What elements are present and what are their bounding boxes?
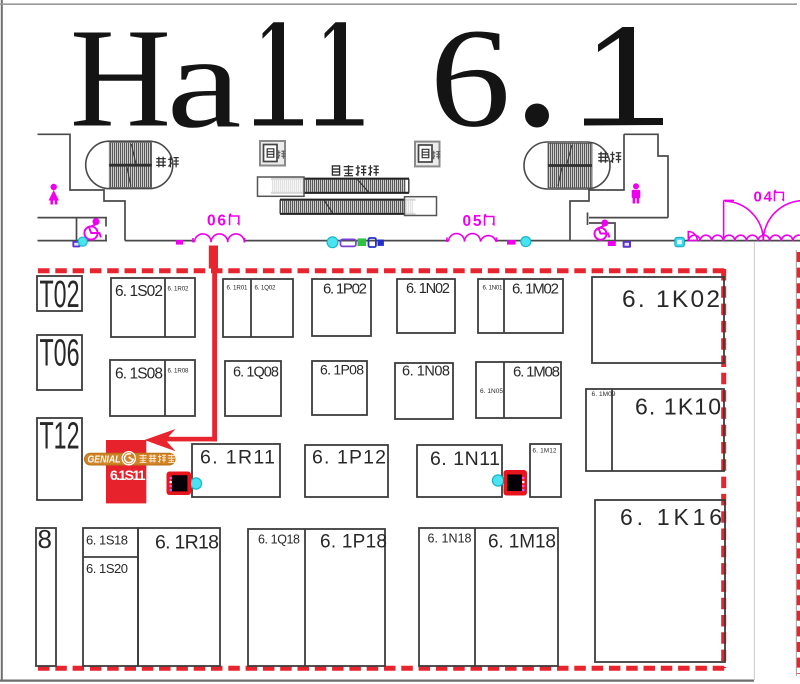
svg-text:6. 1P18: 6. 1P18 [320, 532, 387, 553]
svg-text:6. 1P12: 6. 1P12 [312, 447, 386, 469]
svg-text:6. 1M09: 6. 1M09 [592, 391, 616, 398]
svg-text:06: 06 [207, 213, 226, 230]
svg-text:6. 1S02: 6. 1S02 [115, 283, 163, 300]
svg-text:6. 1S18: 6. 1S18 [86, 533, 128, 548]
svg-text:6. 1Q02: 6. 1Q02 [255, 285, 277, 292]
svg-text:6. 1M18: 6. 1M18 [488, 532, 556, 553]
svg-text:6. 1N08: 6. 1N08 [402, 364, 450, 380]
svg-text:6. 1N02: 6. 1N02 [406, 281, 450, 297]
svg-text:T12: T12 [40, 416, 80, 458]
svg-text:6. 1N11: 6. 1N11 [430, 448, 500, 470]
svg-text:T06: T06 [40, 333, 80, 375]
svg-text:6. 1M12: 6. 1M12 [533, 448, 558, 455]
svg-text:05: 05 [463, 213, 482, 230]
svg-text:8: 8 [38, 524, 52, 554]
svg-text:6. 1P02: 6. 1P02 [323, 281, 367, 298]
svg-text:a: a [167, 8, 242, 156]
svg-text:6. 1S08: 6. 1S08 [115, 366, 163, 383]
svg-text:6. 1R08: 6. 1R08 [168, 368, 190, 375]
svg-text:6. 1P08: 6. 1P08 [320, 362, 364, 378]
svg-text:6. 1K10: 6. 1K10 [635, 394, 721, 420]
svg-text:6. 1R18: 6. 1R18 [155, 532, 219, 554]
svg-text:6. 1K16: 6. 1K16 [620, 504, 722, 530]
svg-text:6: 6 [430, 0, 511, 157]
svg-text:6. 1R01: 6. 1R01 [227, 285, 249, 292]
svg-text:6. 1M08: 6. 1M08 [513, 364, 560, 381]
svg-text:6. 1R11: 6. 1R11 [200, 447, 275, 469]
svg-text:T02: T02 [40, 274, 80, 316]
svg-text:6. 1N18: 6. 1N18 [428, 532, 472, 546]
svg-text:6. 1N05: 6. 1N05 [480, 388, 503, 395]
svg-text:GENIAL: GENIAL [88, 453, 121, 465]
svg-text:6. 1R02: 6. 1R02 [168, 286, 190, 293]
svg-text:6. 1Q08: 6. 1Q08 [233, 365, 279, 381]
svg-text:6. 1S20: 6. 1S20 [86, 561, 128, 576]
svg-text:04: 04 [754, 189, 773, 206]
svg-text:6. 1N01: 6. 1N01 [483, 285, 504, 292]
svg-text:6. 1M02: 6. 1M02 [512, 281, 559, 298]
svg-text:6. 1Q18: 6. 1Q18 [258, 533, 300, 547]
svg-text:6.1S11: 6.1S11 [110, 467, 146, 483]
svg-text:6. 1K02: 6. 1K02 [622, 286, 720, 313]
svg-text:H: H [70, 0, 171, 157]
